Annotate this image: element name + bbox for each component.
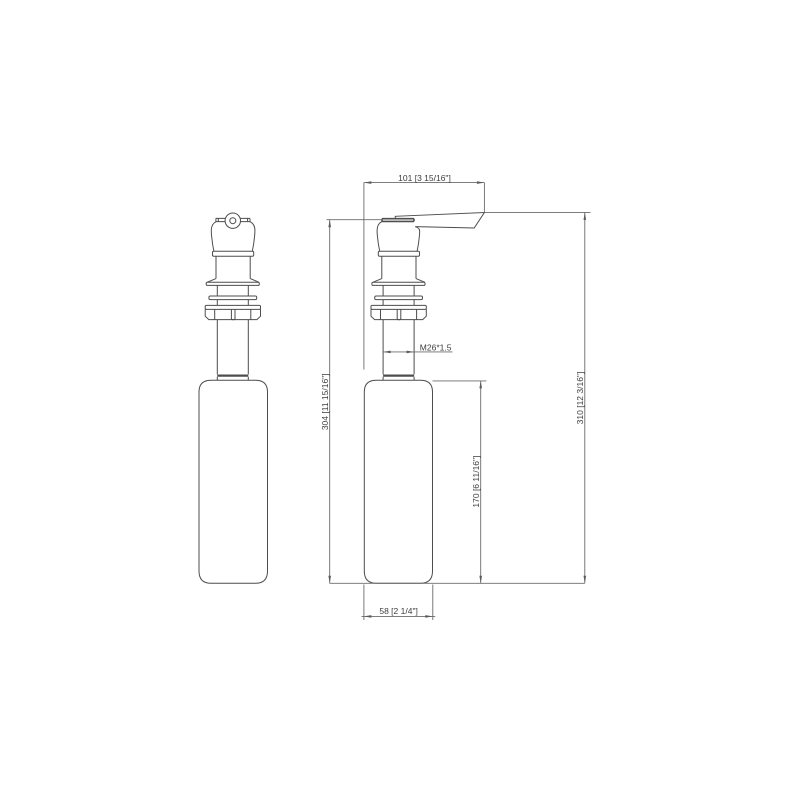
svg-text:170 [6 11/16"]: 170 [6 11/16"]: [471, 456, 481, 508]
svg-text:310 [12 3/16"]: 310 [12 3/16"]: [575, 372, 585, 425]
svg-text:304 [11 15/16"]: 304 [11 15/16"]: [320, 373, 330, 430]
svg-text:58 [2 1/4"]: 58 [2 1/4"]: [379, 606, 417, 616]
svg-text:101 [3 15/16"]: 101 [3 15/16"]: [398, 173, 451, 183]
svg-text:M26*1.5: M26*1.5: [420, 342, 452, 352]
